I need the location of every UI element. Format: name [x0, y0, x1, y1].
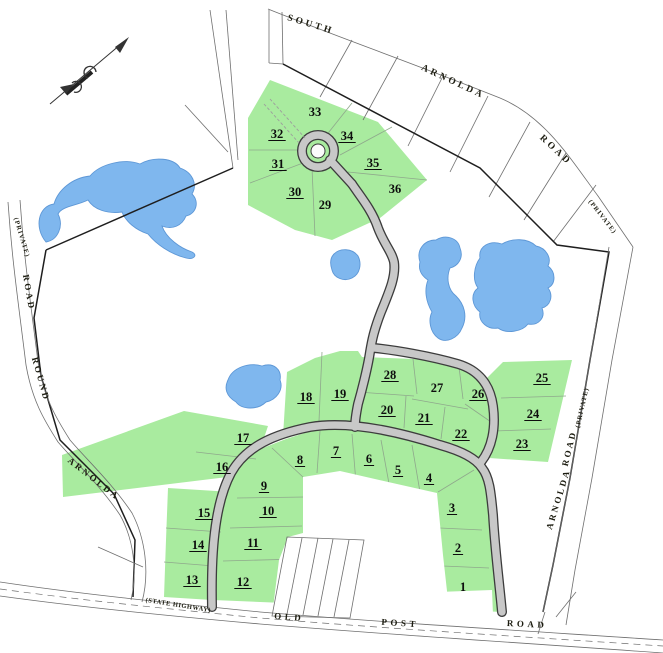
- lot-number-24: 24: [527, 407, 540, 421]
- arnolda-round-road-east-edge: [20, 200, 146, 602]
- subdivision-plat-map: 1234567891011121314151617181920212223242…: [0, 0, 663, 653]
- pond-lot17: [226, 365, 281, 408]
- lot-number-15: 15: [198, 506, 211, 520]
- lot-number-16: 16: [216, 460, 229, 474]
- lot-number-8: 8: [297, 453, 303, 467]
- lot-number-7: 7: [333, 444, 339, 458]
- lot-number-26: 26: [472, 387, 485, 401]
- lot-number-2: 2: [455, 541, 461, 555]
- road-label: ROAD: [21, 274, 37, 312]
- north-arrow-head: [115, 37, 129, 53]
- road-label: (STATE HIGHWAY): [145, 597, 211, 614]
- lot-number-11: 11: [247, 536, 259, 550]
- lot-number-35: 35: [367, 156, 380, 170]
- lot-number-3: 3: [449, 501, 455, 515]
- road-label: (PRIVATE): [574, 387, 590, 429]
- road-label: SOUTH: [286, 13, 335, 37]
- lot-number-17: 17: [237, 431, 250, 445]
- pond-west: [39, 159, 196, 258]
- lot-number-14: 14: [192, 538, 205, 552]
- lot-number-21: 21: [418, 411, 431, 425]
- pond-small-center: [331, 250, 360, 280]
- lot-number-34: 34: [341, 129, 354, 143]
- road-label: ARNOLDA: [544, 468, 572, 531]
- lot-number-36: 36: [389, 182, 402, 196]
- lot-number-23: 23: [516, 437, 529, 451]
- lot-number-6: 6: [366, 452, 372, 466]
- lot-number-27: 27: [431, 381, 444, 395]
- lot-number-19: 19: [334, 387, 347, 401]
- plat-svg: 1234567891011121314151617181920212223242…: [0, 0, 663, 653]
- lot-number-25: 25: [536, 371, 549, 385]
- lot-number-13: 13: [186, 573, 199, 587]
- road-label: (PRIVATE): [12, 217, 31, 259]
- road-label: ROUND: [30, 356, 52, 402]
- lot-number-29: 29: [319, 198, 332, 212]
- lot-number-4: 4: [426, 471, 433, 485]
- lot-number-9: 9: [261, 479, 267, 493]
- lot-number-30: 30: [289, 185, 302, 199]
- lot-number-28: 28: [384, 368, 397, 382]
- lot-number-22: 22: [455, 427, 468, 441]
- lot-number-18: 18: [300, 390, 313, 404]
- lot-number-5: 5: [395, 463, 401, 477]
- pond-hook: [419, 237, 465, 340]
- north-arrow-icon: [50, 37, 129, 104]
- road-label: ROAD: [507, 618, 548, 630]
- road-label: OLD: [274, 611, 305, 624]
- lot-number-20: 20: [381, 403, 394, 417]
- pond-east: [473, 240, 554, 332]
- arnolda-round-road-west-edge: [8, 202, 134, 600]
- road-label: ARNOLDA: [419, 63, 486, 101]
- lot-number-33: 33: [309, 105, 322, 119]
- lot-number-1: 1: [460, 580, 466, 594]
- lot-number-31: 31: [272, 157, 285, 171]
- road-label: (PRIVATE): [587, 199, 618, 236]
- road-label: ROAD: [537, 133, 573, 168]
- lot-number-10: 10: [262, 504, 275, 518]
- lot-number-32: 32: [271, 127, 284, 141]
- cul-de-sac-island: [311, 144, 325, 158]
- lot-number-12: 12: [237, 575, 250, 589]
